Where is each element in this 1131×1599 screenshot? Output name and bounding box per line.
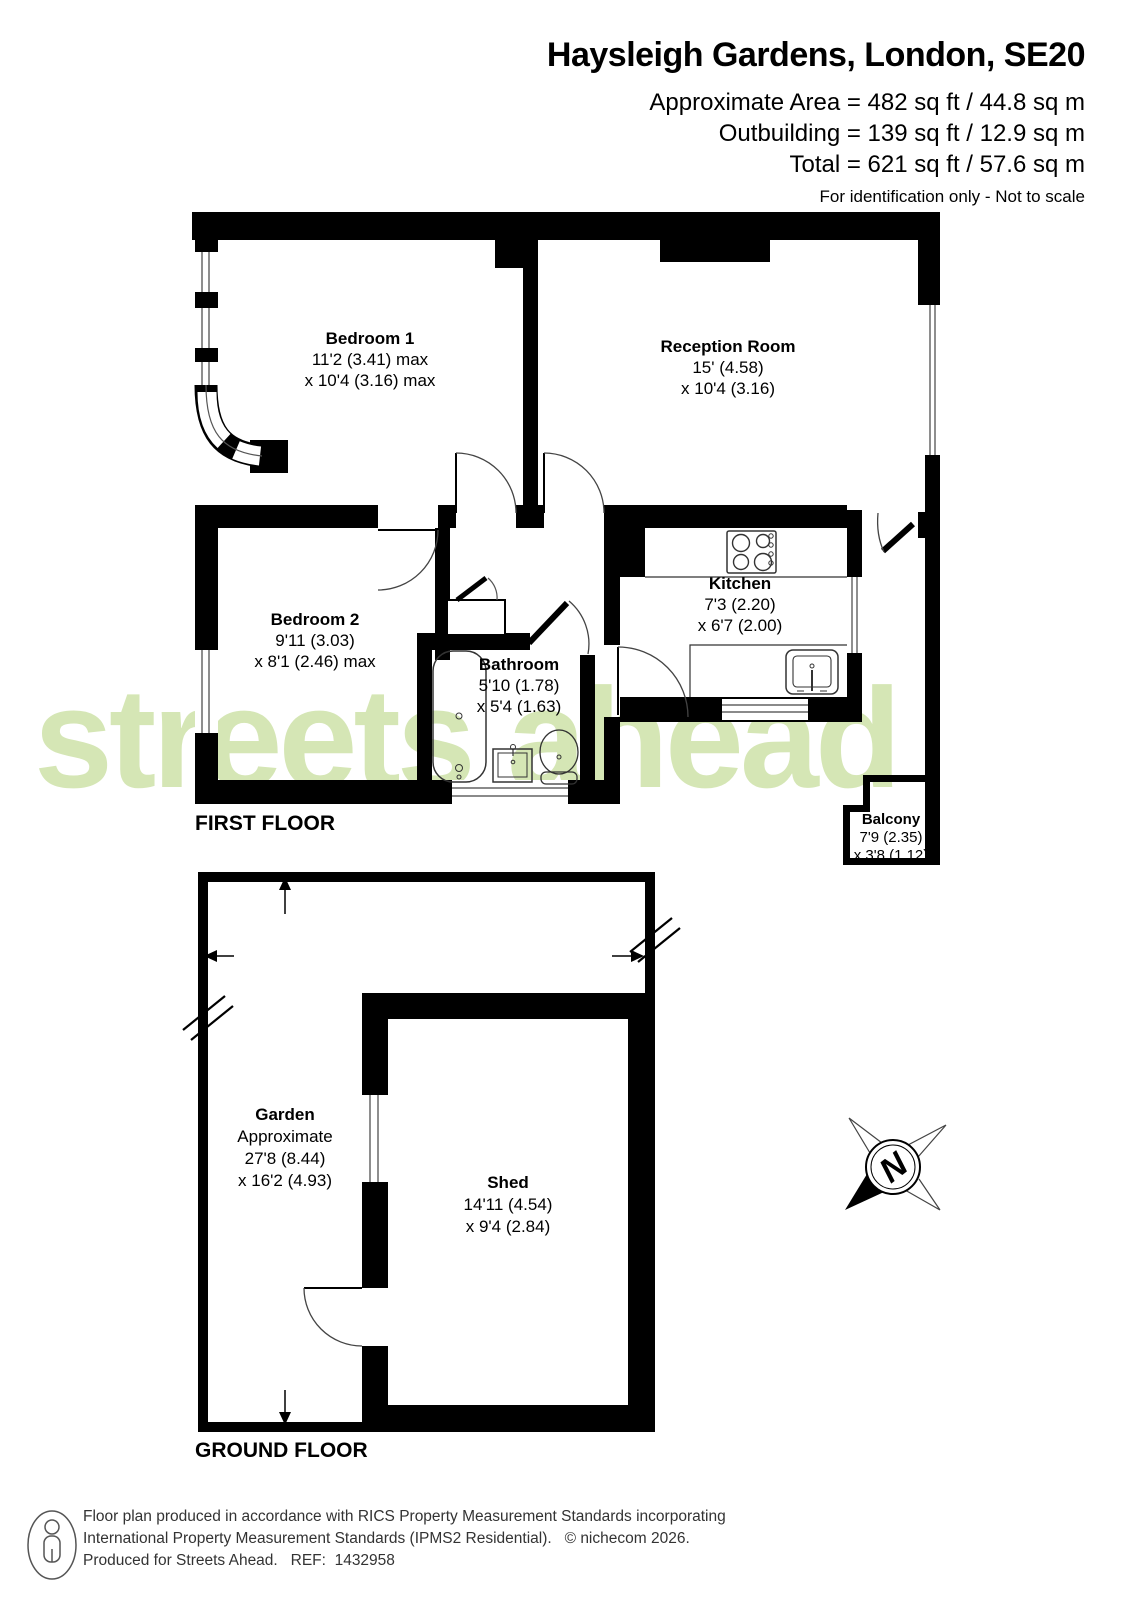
arrow-left [204,950,234,962]
toilet [540,730,578,784]
bathroom-door [529,601,589,654]
bay-window [206,385,262,456]
bathroom-dim1: 5'10 (1.78) [479,676,560,695]
footer-line-1: Floor plan produced in accordance with R… [83,1506,726,1528]
wall [604,528,620,645]
arrow-up [279,877,291,914]
bedroom2-door [378,530,438,590]
shed-wall [362,1346,388,1405]
shed-wall [362,1405,655,1432]
bedroom1-dim1: 11'2 (3.41) max [312,350,429,369]
wall [192,212,940,240]
bedroom2-label: Bedroom 2 [271,610,360,629]
reception-dim2: x 10'4 (3.16) [681,379,775,398]
balcony-door [878,513,913,552]
wall [620,528,645,577]
bathroom-label: Bathroom [479,655,559,674]
wall [516,505,544,528]
bedroom1-label: Bedroom 1 [326,329,415,348]
shed-dim2: x 9'4 (2.84) [466,1217,551,1236]
ground-floor-label: GROUND FLOOR [195,1439,368,1462]
wall [195,212,218,385]
bedroom2-dim2: x 8'1 (2.46) max [254,652,376,671]
wall [195,505,378,528]
garden-dim2: x 16'2 (4.93) [238,1171,332,1190]
wall [604,717,620,804]
bathroom-sink [493,745,532,783]
first-floor-label: FIRST FLOOR [195,812,335,835]
doors [378,453,913,717]
kitchen-counter-bottom [690,645,847,697]
kitchen-dim2: x 6'7 (2.00) [698,616,783,635]
wall [195,505,218,780]
reception-dim1: 15' (4.58) [692,358,763,377]
footer-line-2: International Property Measurement Stand… [83,1528,726,1550]
wall [523,240,538,513]
shed-window [362,1095,388,1182]
wall [925,212,940,305]
arrow-down [279,1390,291,1425]
kitchen-dim1: 7'3 (2.20) [704,595,775,614]
bedroom1-dim2: x 10'4 (3.16) max [305,371,436,390]
kitchen-sink [786,650,838,694]
chimney-breast [660,240,770,262]
wall [580,655,595,780]
wall [604,505,847,528]
window [195,308,218,348]
first-floor-walls [192,212,940,865]
balcony-wall [863,775,925,782]
shed-wall [362,993,655,1019]
shed-door [304,1288,362,1346]
wall [417,650,432,780]
garden-wall [198,872,655,882]
garden-note: Approximate [237,1127,332,1146]
wall [438,505,456,528]
window [722,699,808,720]
hall-cupboard [447,578,505,635]
compass: N [845,1118,946,1210]
kitchen-fixtures [645,531,847,697]
window [925,305,940,455]
shed-wall [628,993,655,1432]
bedroom1-door [456,453,516,513]
shed-dim1: 14'11 (4.54) [464,1195,553,1214]
floorplan-page: Haysleigh Gardens, London, SE20 Approxim… [0,0,1131,1599]
shed-label: Shed [487,1173,529,1192]
footer-line-3: Produced for Streets Ahead. REF: 1432958 [83,1550,726,1572]
bathroom-dim2: x 5'4 (1.63) [477,697,562,716]
fence-break-marks [183,918,680,1040]
window [195,650,218,733]
kitchen-label: Kitchen [709,574,771,593]
bedroom2-dim1: 9'11 (3.03) [275,631,354,650]
reception-door [544,453,604,513]
hob [727,531,776,573]
reception-label: Reception Room [660,337,795,356]
window [195,252,218,292]
window [847,577,862,653]
balcony-dim2: x 3'8 (1.12) [854,847,929,864]
footer: Floor plan produced in accordance with R… [83,1506,726,1572]
balcony-dim1: 7'9 (2.35) [860,829,923,846]
person-logo [28,1511,76,1579]
window [195,362,218,385]
garden-dim1: 27'8 (8.44) [245,1149,326,1168]
garden-label: Garden [255,1105,315,1124]
balcony-label: Balcony [862,811,921,828]
wall [918,512,940,538]
floorplan-drawing: N Bedroom 1 11'2 (3.41) max x 10'4 (3.16… [0,0,1131,1599]
balcony-wall [843,805,850,865]
